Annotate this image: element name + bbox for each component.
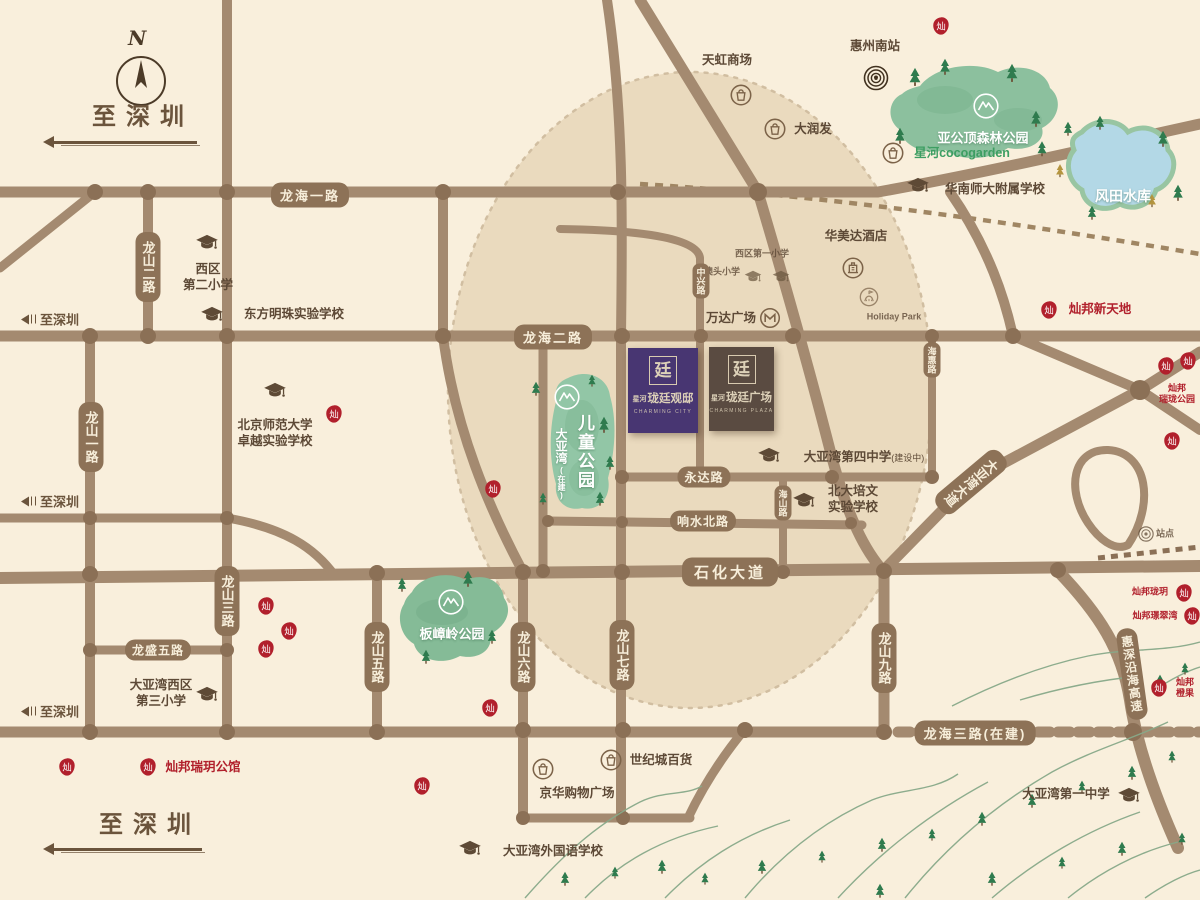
project-logo: 廷	[649, 356, 677, 385]
school-icon	[757, 447, 781, 465]
canbang-chengguo-label: 灿邦橙果	[1176, 677, 1194, 700]
left-arrow-icon	[47, 848, 202, 851]
park-mountain-icon	[438, 589, 464, 615]
left-arrow-icon	[47, 141, 197, 144]
longsheng-5th-rd-label: 龙盛五路	[125, 640, 191, 661]
to-shenzhen-mid-1: 至深圳	[16, 310, 79, 329]
longhai-1st-rd-label: 龙海一路	[271, 183, 349, 208]
yongda-rd-label: 永达路	[677, 467, 730, 488]
project-name: 星河珑廷广场	[709, 389, 774, 405]
svg-text:灿: 灿	[284, 625, 293, 636]
station-east-label: 站点	[1156, 528, 1174, 539]
to-shenzhen-mid-3: 至深圳	[16, 702, 79, 721]
canbang-jingcuiwan-label: 灿邦璟翠湾	[1132, 610, 1177, 621]
arrow-bars-icon	[31, 315, 36, 324]
seal-icon: 灿	[326, 405, 343, 424]
seal-icon: 灿	[281, 622, 298, 641]
longshan-6th-rd-label: 龙山六路	[511, 622, 536, 692]
project-name-en: CHARMING CITY	[628, 409, 698, 415]
seal-icon: 灿	[1184, 607, 1200, 626]
longshan-2nd-rd-label: 龙山二路	[136, 232, 161, 302]
svg-text:灿: 灿	[1161, 360, 1170, 371]
longhai-2nd-rd-label: 龙海二路	[514, 325, 592, 350]
metro-icon	[760, 308, 781, 329]
longshan-5th-rd-label: 龙山五路	[365, 622, 390, 692]
seal-icon: 灿	[258, 597, 275, 616]
century-mall-label: 世纪城百货	[630, 752, 693, 768]
arrow-bars-icon	[31, 497, 36, 506]
mall-icon	[730, 84, 752, 106]
ramada-hotel-label: 华美达酒店	[825, 228, 888, 244]
school-icon	[906, 177, 930, 195]
longshan-7th-rd-label: 龙山七路	[610, 620, 635, 690]
xiangshui-north-rd-label: 响水北路	[670, 511, 736, 532]
canbang-longyue-label: 灿邦珑玥	[1132, 586, 1168, 597]
svg-text:灿: 灿	[485, 702, 494, 713]
left-arrow-icon	[16, 314, 29, 324]
station-icon	[863, 65, 889, 91]
svg-text:灿: 灿	[1187, 610, 1196, 621]
project-logo: 廷	[728, 355, 756, 384]
xiqu-2nd-primary-label: 西区第二小学	[183, 261, 233, 294]
longshan-1st-rd-label: 龙山一路	[79, 402, 104, 472]
school-icon	[263, 382, 287, 400]
canbang-ruilong-park-label: 灿邦瑞珑公园	[1159, 383, 1195, 406]
dayawan-children-park-label: 大亚湾(在建)儿童公园	[553, 414, 597, 500]
svg-text:灿: 灿	[261, 600, 270, 611]
svg-text:灿: 灿	[62, 761, 71, 772]
dayawan-1st-middle-label: 大亚湾第一中学	[1022, 786, 1110, 802]
mall-icon	[600, 749, 622, 771]
jinghua-shopping-plaza-label: 京华购物广场	[539, 785, 614, 801]
longshan-9th-rd-label: 龙山九路	[872, 623, 897, 693]
to-shenzhen-mid-2: 至深圳	[16, 492, 79, 511]
stationsm-icon	[1138, 526, 1155, 543]
park-mountain-icon	[554, 384, 580, 410]
seal-icon: 灿	[933, 17, 950, 36]
seal-icon: 灿	[1041, 301, 1058, 320]
svg-text:灿: 灿	[1044, 304, 1053, 315]
location-map: N 龙海一路龙海二路石化大道龙海三路(在建)永达路响水北路龙盛五路龙山一路龙山二…	[0, 0, 1200, 900]
project-name: 星河珑廷观邸	[628, 390, 698, 406]
longshan-3rd-rd-label: 龙山三路	[215, 566, 240, 636]
seal-icon: 灿	[59, 758, 76, 777]
school-icon	[458, 840, 482, 858]
dayawan-4th-middle-label: 大亚湾第四中学(建设中)	[804, 449, 925, 465]
park-mountain-icon	[973, 93, 999, 119]
bnu-zhuoyue-school-label: 北京师范大学卓越实验学校	[237, 417, 312, 450]
zhongxing-rd-label: 中兴路	[693, 264, 710, 299]
svg-text:灿: 灿	[1183, 355, 1192, 366]
holiday-park-label: Holiday Park	[867, 311, 922, 322]
dayawan-foreign-lang-school-label: 大亚湾外国语学校	[503, 843, 603, 859]
to-shenzhen-bottom: 至深圳	[99, 805, 201, 840]
wanda-plaza-label: 万达广场	[706, 310, 756, 326]
xiqu-3rd-primary-label: 大亚湾西区第三小学	[130, 677, 193, 710]
seal-icon: 灿	[1180, 352, 1197, 371]
haihui-rd-label: 海惠路	[924, 343, 941, 378]
svg-text:灿: 灿	[143, 761, 152, 772]
school-icon	[195, 686, 219, 704]
svg-text:灿: 灿	[488, 483, 497, 494]
seal-icon: 灿	[1158, 357, 1175, 376]
longting-guandi: 廷星河珑廷观邸CHARMING CITY	[628, 348, 698, 433]
scnu-affiliated-school-label: 华南师大附属学校	[945, 181, 1045, 197]
seal-icon: 灿	[140, 758, 157, 777]
seal-icon: 灿	[482, 699, 499, 718]
canbang-xintiandi-label: 灿邦新天地	[1069, 301, 1132, 317]
rt-mart-label: 大润发	[794, 121, 832, 137]
mall-icon	[882, 142, 904, 164]
mall-icon	[764, 118, 786, 140]
seal-icon: 灿	[485, 480, 502, 499]
seal-icon: 灿	[258, 640, 275, 659]
left-arrow-icon	[16, 706, 29, 716]
arrow-bars-icon	[31, 707, 36, 716]
hotel-icon	[842, 257, 864, 279]
fengtian-reservoir-label: 风田水库	[1095, 186, 1151, 206]
longhai-3rd-rd-label: 龙海三路(在建)	[915, 721, 1036, 746]
yagongding-forest-park-label: 亚公顶森林公园	[937, 128, 1028, 147]
to-shenzhen-top: 至深圳	[92, 97, 194, 132]
misc-icon	[859, 287, 879, 307]
seal-icon: 灿	[1164, 432, 1181, 451]
mall-icon	[532, 758, 554, 780]
school2-icon	[772, 270, 790, 284]
seal-icon: 灿	[1176, 584, 1193, 603]
school-icon	[792, 492, 816, 510]
svg-text:灿: 灿	[1154, 682, 1163, 693]
left-arrow-icon	[16, 496, 29, 506]
school2-icon	[744, 270, 762, 284]
canbang-ruiyue-mansion-label: 灿邦瑞玥公馆	[165, 759, 240, 775]
seal-icon: 灿	[1151, 679, 1168, 698]
haishan-rd-label: 海山路	[775, 486, 792, 521]
cocogarden-label: 星河cocogarden	[914, 145, 1010, 161]
banzhangling-park-label: 板嶂岭公园	[419, 624, 484, 643]
school-icon	[200, 306, 224, 324]
svg-text:灿: 灿	[261, 643, 270, 654]
svg-text:灿: 灿	[417, 780, 426, 791]
shihua-ave-label: 石化大道	[682, 558, 778, 587]
compass-north-label: N	[128, 26, 146, 50]
dongfang-mingzhu-school-label: 东方明珠实验学校	[244, 306, 344, 322]
svg-text:灿: 灿	[936, 20, 945, 31]
seal-icon: 灿	[414, 777, 431, 796]
huizhou-south-station-label: 惠州南站	[850, 38, 900, 54]
svg-text:灿: 灿	[1179, 587, 1188, 598]
project-name-en: CHARMING PLAZA	[709, 408, 774, 414]
svg-text:灿: 灿	[1167, 435, 1176, 446]
tianhong-mall-label: 天虹商场	[702, 52, 752, 68]
school-icon	[195, 234, 219, 252]
svg-text:灿: 灿	[329, 408, 338, 419]
xiqu-1st-primary-label: 西区第一小学	[735, 248, 789, 259]
school-icon	[1117, 787, 1141, 805]
longting-plaza: 廷星河珑廷广场CHARMING PLAZA	[709, 347, 774, 431]
beida-peiwen-school-label: 北大培文实验学校	[828, 483, 878, 516]
